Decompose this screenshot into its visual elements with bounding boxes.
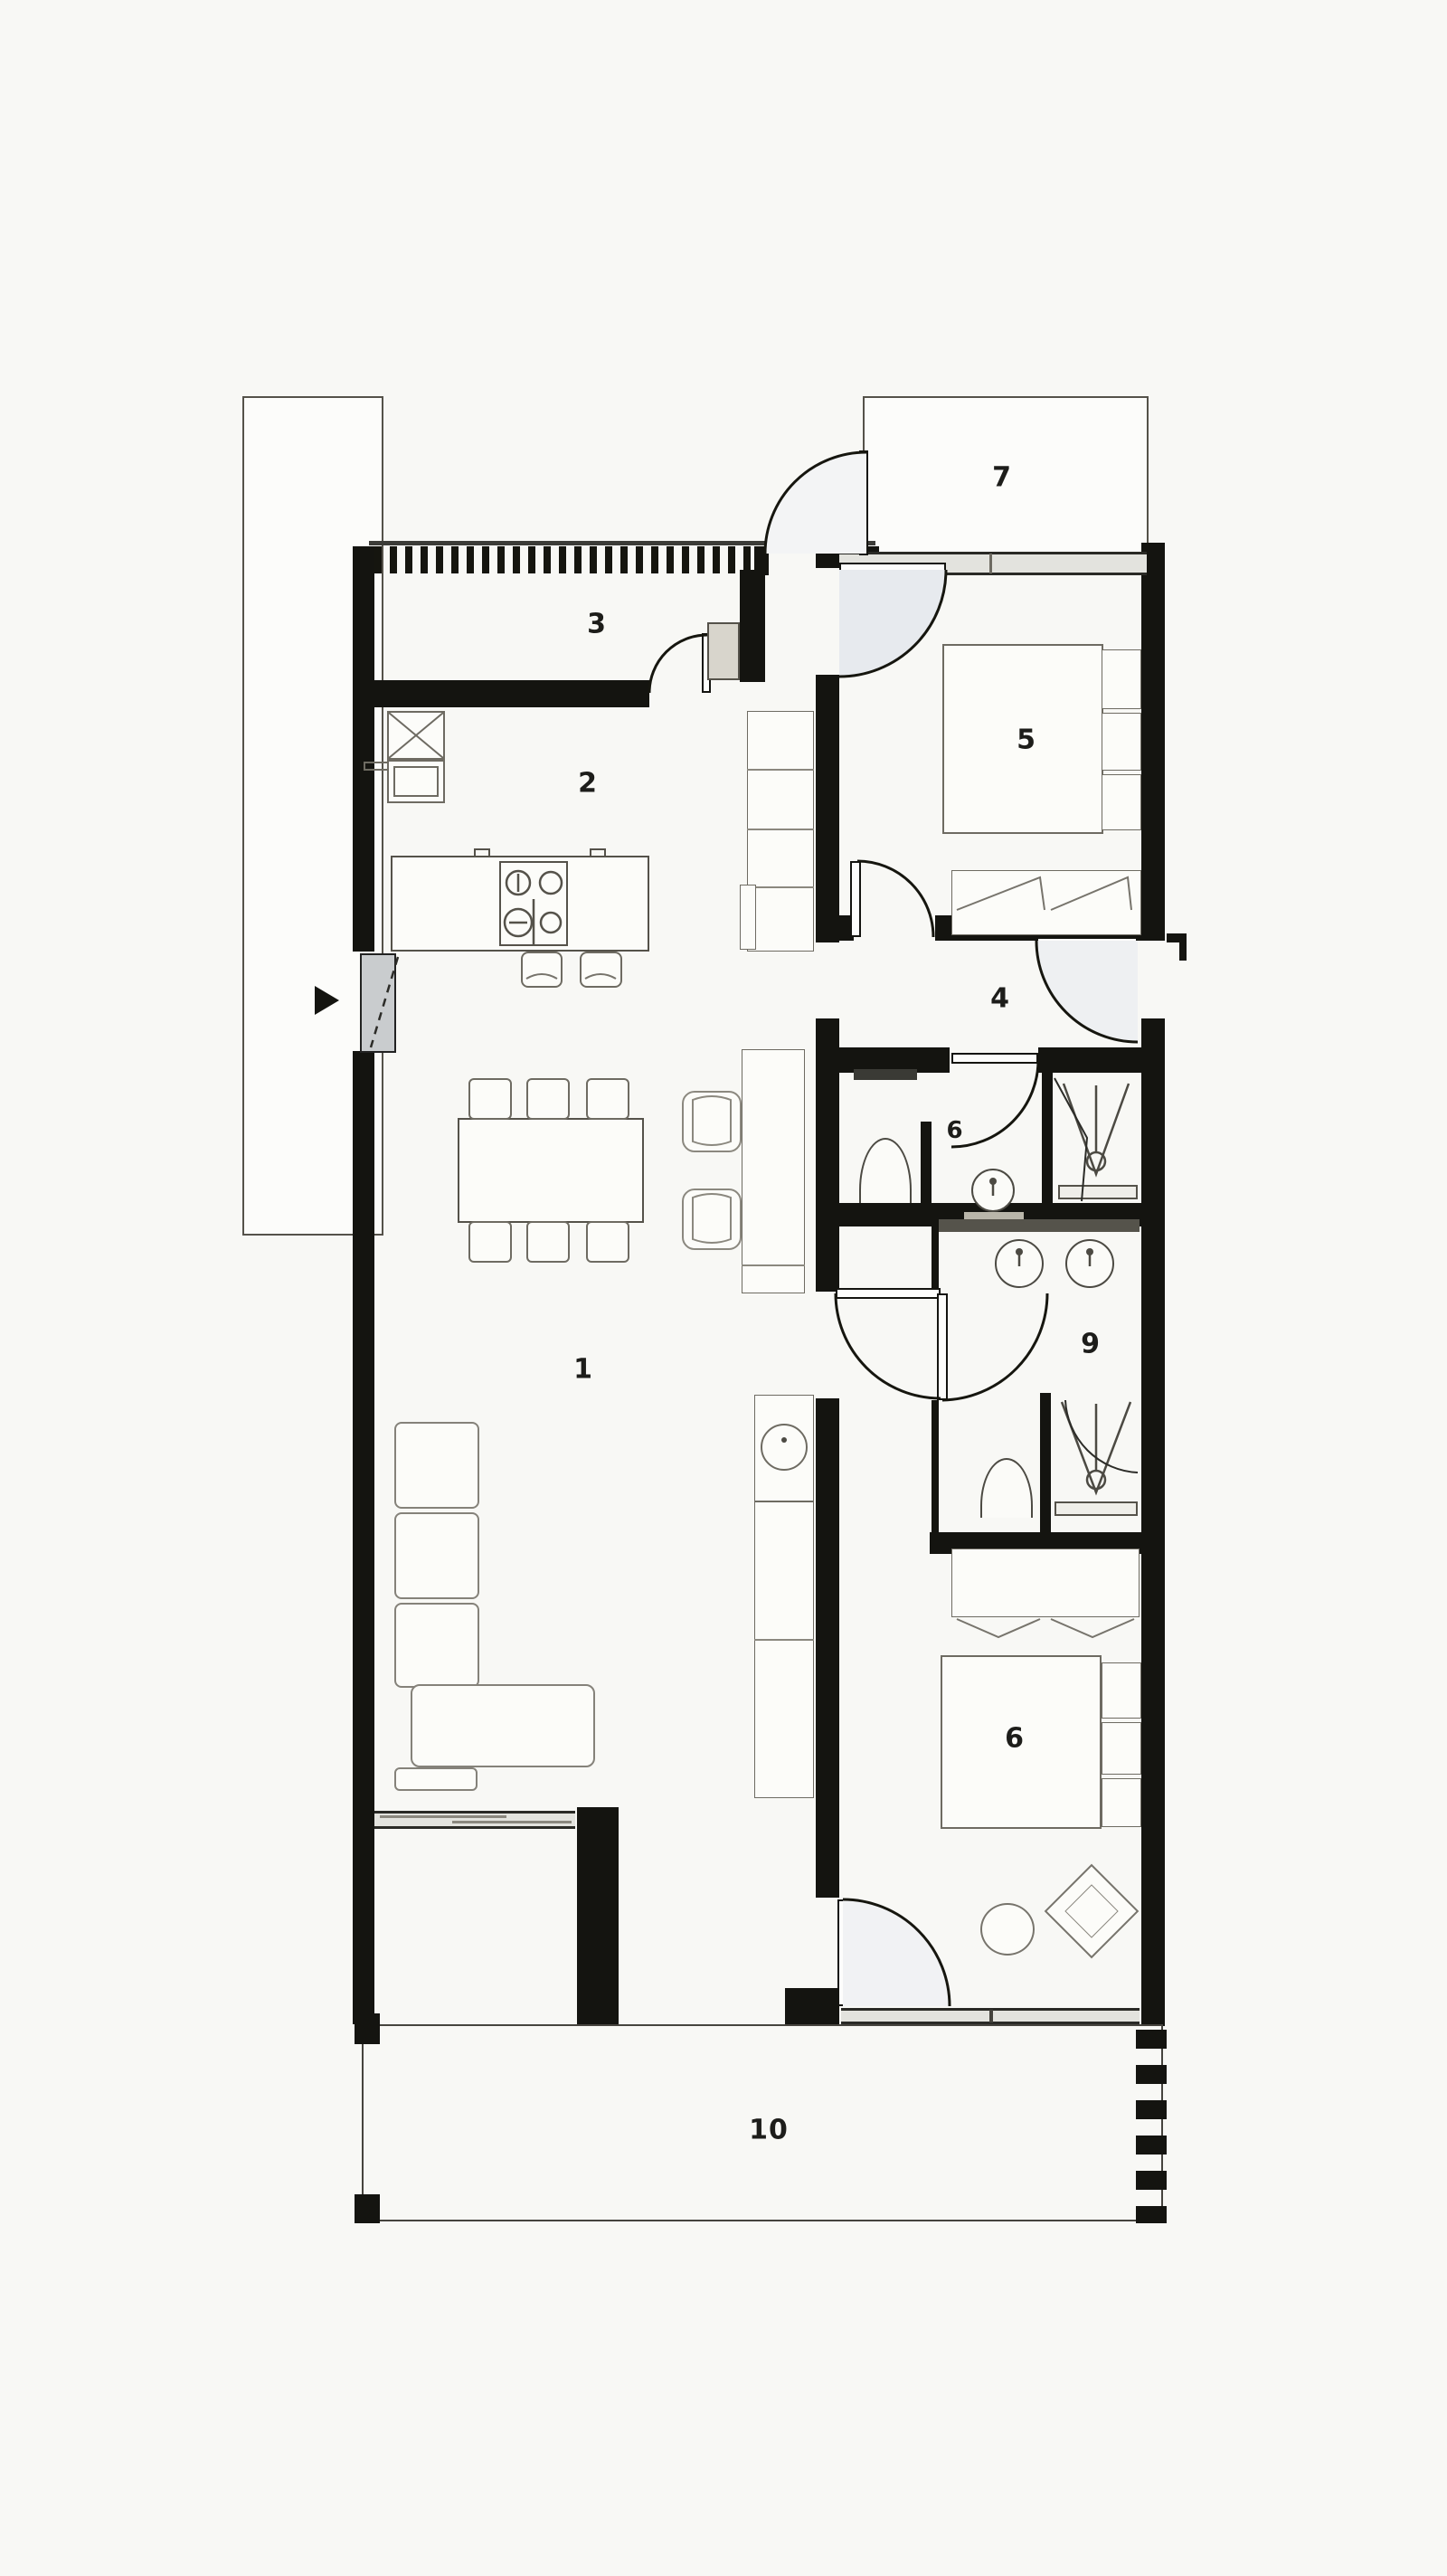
room-label-bathroom-small: 6 xyxy=(946,1117,963,1144)
plan-linework xyxy=(0,0,1447,2576)
door-swing-icon-bath6 xyxy=(951,1060,1038,1147)
room-label-living-dining-area: 1 xyxy=(573,1354,593,1386)
door-fan-bed5 xyxy=(839,570,946,677)
room-label-entrance-hall: 3 xyxy=(587,609,607,640)
shower-drain-icon-bath6 xyxy=(1055,1078,1129,1201)
lounge-chair-backs xyxy=(693,1096,731,1243)
door-swing-icon-bath9 xyxy=(942,1293,1047,1400)
room-label-kitchen: 2 xyxy=(578,768,598,800)
room-label-bathroom-large: 9 xyxy=(1081,1329,1101,1360)
sink-unit-x xyxy=(389,713,443,796)
stool-curves xyxy=(526,974,616,979)
door-swing-icon-bed5-corridor xyxy=(857,861,933,937)
door-fan-unit-entry xyxy=(1036,941,1138,1042)
room-label-bedroom-bottom: 6 xyxy=(1005,1723,1025,1755)
room-label-corridor: 4 xyxy=(990,983,1010,1015)
floor-plan: 1 2 3 4 5 6 7 9 6 10 xyxy=(0,0,1447,2576)
room-label-bedroom-top: 5 xyxy=(1017,724,1036,756)
room-label-terrace: 10 xyxy=(749,2115,789,2146)
door-fan-top-entry xyxy=(765,452,866,554)
door-swing-icon-vestibule xyxy=(836,1293,941,1398)
wardrobe-chevron-icon-bottom xyxy=(957,1619,1134,1637)
room-label-balcony-top: 7 xyxy=(992,462,1012,494)
cooktop-burners-icon xyxy=(505,871,562,946)
side-door-dash xyxy=(371,957,398,1047)
shower-drain-icon-bath9 xyxy=(1062,1400,1138,1492)
door-swing-icon-hall3 xyxy=(649,635,707,693)
door-fan-bedroom xyxy=(843,1899,950,2006)
wardrobe-chevron-icon-top xyxy=(957,877,1131,910)
